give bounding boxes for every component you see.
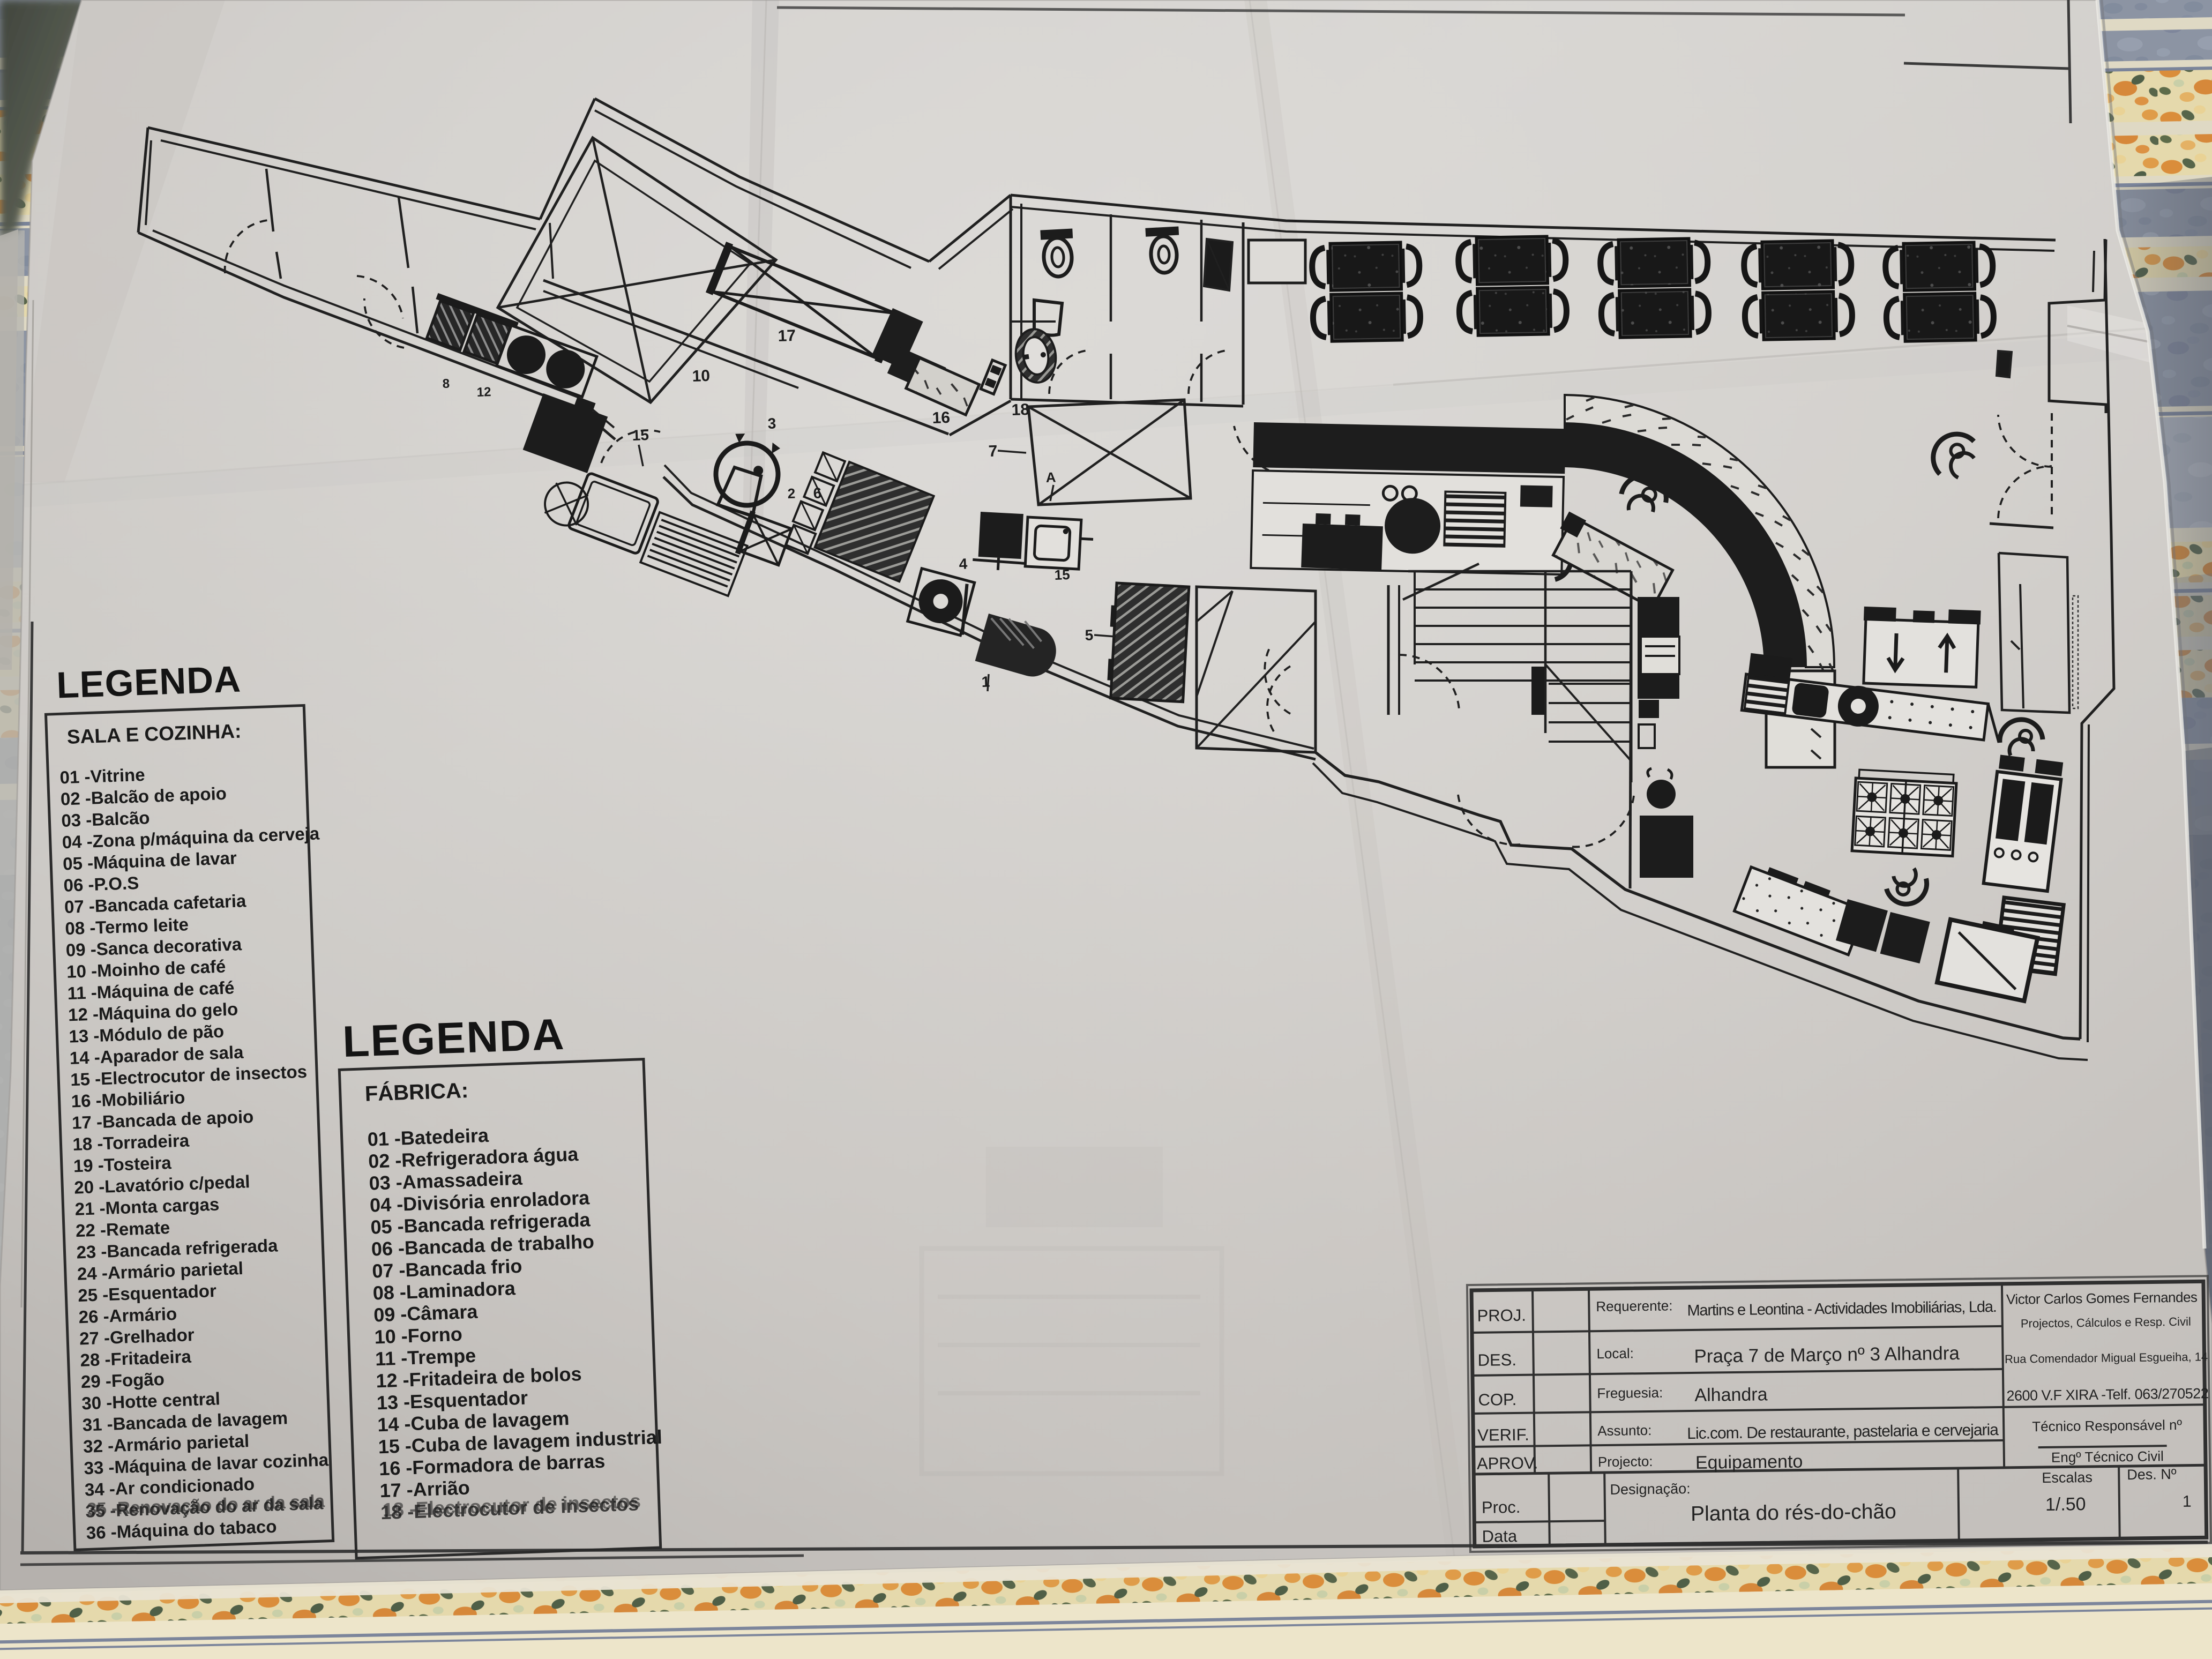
svg-text:10: 10 <box>692 367 711 385</box>
svg-text:LEGENDA: LEGENDA <box>56 659 242 706</box>
svg-text:17: 17 <box>778 327 796 345</box>
svg-text:1/.50: 1/.50 <box>2045 1494 2086 1515</box>
svg-text:16 -Mobiliário: 16 -Mobiliário <box>71 1087 185 1111</box>
svg-text:Projecto:: Projecto: <box>1598 1453 1653 1470</box>
svg-text:Assunto:: Assunto: <box>1597 1422 1652 1439</box>
svg-text:4: 4 <box>959 555 968 572</box>
svg-text:09 -Câmara: 09 -Câmara <box>373 1301 479 1326</box>
svg-text:18 -Torradeira: 18 -Torradeira <box>72 1130 190 1154</box>
svg-text:Alhandra: Alhandra <box>1694 1384 1768 1406</box>
svg-text:8: 8 <box>442 377 450 391</box>
svg-text:Equipamento: Equipamento <box>1695 1451 1803 1473</box>
svg-text:APROV.: APROV. <box>1477 1454 1538 1473</box>
svg-text:Data: Data <box>1482 1527 1518 1546</box>
svg-text:29 -Fogão: 29 -Fogão <box>80 1369 165 1392</box>
svg-text:Projectos, Cálculos e Resp. Ci: Projectos, Cálculos e Resp. Civil <box>2021 1315 2191 1331</box>
svg-text:Técnico Responsável nº: Técnico Responsável nº <box>2032 1417 2183 1434</box>
svg-text:LEGENDA: LEGENDA <box>342 1010 566 1066</box>
svg-text:11 -Trempe: 11 -Trempe <box>375 1344 476 1370</box>
svg-text:Des. Nº: Des. Nº <box>2127 1466 2177 1483</box>
svg-text:Local:: Local: <box>1596 1345 1634 1362</box>
svg-text:Engº Técnico Civil: Engº Técnico Civil <box>2051 1448 2164 1466</box>
svg-text:Escalas: Escalas <box>2042 1469 2093 1486</box>
svg-text:5: 5 <box>1085 626 1094 644</box>
svg-text:19 -Tosteira: 19 -Tosteira <box>73 1153 172 1176</box>
svg-text:Praça 7 de Março nº 3 Alhand: Praça 7 de Março nº 3 Alhandra <box>1694 1343 1960 1367</box>
svg-text:12: 12 <box>476 385 491 400</box>
svg-text:01 -Vitrine: 01 -Vitrine <box>59 765 145 788</box>
svg-text:Proc.: Proc. <box>1482 1498 1521 1517</box>
svg-text:VERIF.: VERIF. <box>1477 1425 1529 1445</box>
svg-text:PROJ.: PROJ. <box>1477 1306 1526 1325</box>
svg-text:DES.: DES. <box>1477 1350 1516 1370</box>
svg-text:Planta do rés-do-chão: Planta do rés-do-chão <box>1691 1500 1896 1526</box>
svg-text:27 -Grelhador: 27 -Grelhador <box>79 1325 195 1348</box>
svg-text:A: A <box>1045 469 1056 485</box>
svg-text:FÁBRICA:: FÁBRICA: <box>364 1078 469 1106</box>
svg-text:03 -Balcão: 03 -Balcão <box>61 808 150 831</box>
svg-text:COP.: COP. <box>1478 1390 1516 1409</box>
svg-text:28 -Fritadeira: 28 -Fritadeira <box>80 1347 192 1370</box>
svg-text:Victor Carlos Gomes Fernandes: Victor Carlos Gomes Fernandes <box>2006 1289 2198 1307</box>
svg-text:2600 V.F XIRA -Telf. 063/27052: 2600 V.F XIRA -Telf. 063/270522 <box>2006 1385 2208 1404</box>
svg-text:Rua Comendador Migual Esgueiha: Rua Comendador Migual Esgueiha, 14 <box>2005 1350 2208 1366</box>
svg-text:3: 3 <box>767 415 776 432</box>
svg-text:1: 1 <box>981 673 990 690</box>
svg-text:Freguesia:: Freguesia: <box>1597 1385 1663 1401</box>
svg-text:6: 6 <box>813 484 822 502</box>
svg-text:18: 18 <box>1011 401 1030 419</box>
svg-text:10 -Forno: 10 -Forno <box>374 1323 462 1348</box>
svg-text:Requerente:: Requerente: <box>1596 1297 1672 1314</box>
svg-text:06 -P.O.S: 06 -P.O.S <box>63 873 139 895</box>
svg-text:Designação:: Designação: <box>1610 1481 1690 1498</box>
svg-text:7: 7 <box>988 442 998 460</box>
svg-text:15: 15 <box>1054 566 1070 583</box>
svg-text:22 -Remate: 22 -Remate <box>75 1217 170 1240</box>
svg-text:26 -Armário: 26 -Armário <box>78 1304 177 1327</box>
svg-text:2: 2 <box>787 485 796 502</box>
svg-text:1: 1 <box>2183 1493 2192 1511</box>
svg-text:16: 16 <box>932 409 951 427</box>
svg-text:15: 15 <box>632 427 649 444</box>
